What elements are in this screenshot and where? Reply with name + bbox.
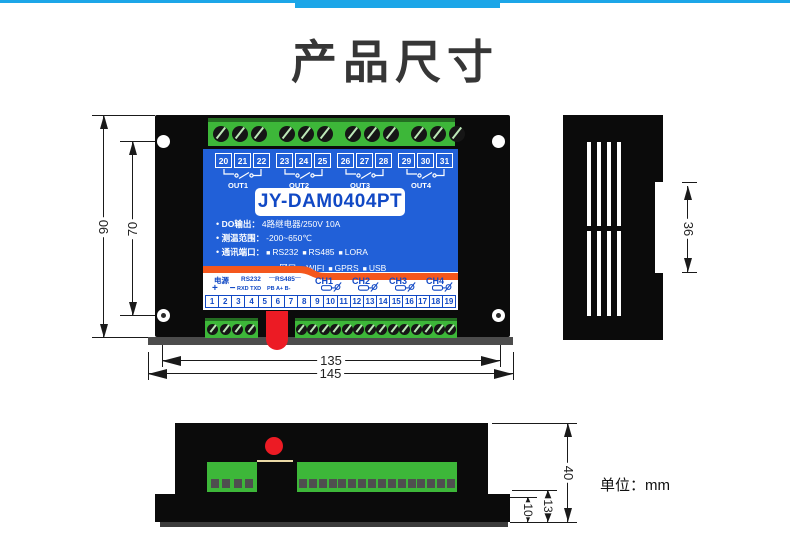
spec-label: DO输出： [222,219,260,229]
screw-icon [376,324,387,335]
terminal-slot [408,479,416,488]
relay-terminal-numbers: 20 21 22 23 24 25 26 27 28 29 30 31 [215,153,453,168]
arrow-down-icon [564,508,572,522]
terminal-number: 22 [253,153,270,168]
vent-slot [617,231,621,316]
terminal-slot [329,479,337,488]
terminal-slot [222,479,230,488]
dim-height-inner: 70 [132,141,133,316]
terminal-number-group: 20 21 22 [215,153,270,168]
ext-line [513,352,514,380]
arrow-left-icon [162,356,181,366]
screw-icon [353,324,364,335]
spec-value: -200~650℃ [266,233,312,243]
bottom-view-terminal-left [207,462,257,492]
page-title: 产品尺寸 [0,26,790,92]
terminal-number: 2 [218,295,232,308]
terminal-group [411,123,465,142]
screw-icon [430,126,446,142]
unit-note: 单位：mm [600,474,670,495]
screw-icon [365,324,376,335]
arrow-down-icon [129,302,137,316]
bottom-view-terminal-right [297,462,457,492]
terminal-number: 26 [337,153,354,168]
usb-connector [266,311,288,350]
dim-label: 10 [521,502,535,517]
terminal-slot [388,479,396,488]
sensor-probe-icon [358,281,380,293]
ext-line [510,522,577,523]
terminal-slot [299,479,307,488]
side-mounting-tab [655,182,682,273]
terminal-slot [309,479,317,488]
terminal-number: 18 [429,295,443,308]
out-label: OUT4 [400,181,442,190]
bottom-view-shadow [160,522,508,527]
arrow-up-icon [129,141,137,155]
terminal-number: 28 [375,153,392,168]
dim-bottom-flange: 10 [527,497,528,522]
dim-label: 13 [541,498,555,513]
product-dimensions-page: 产品尺寸 90 70 20 21 22 [0,0,790,559]
rs485-label: RS485 [269,275,301,283]
terminal-number: 17 [416,295,430,308]
terminal-number: 14 [376,295,390,308]
terminal-slot [358,479,366,488]
screw-icon [422,324,433,335]
screw-icon [232,126,248,142]
terminal-number: 5 [258,295,272,308]
terminal-group [279,123,333,142]
spec-value: 4路继电器/250V 10A [262,219,340,229]
dim-label: 70 [125,218,141,238]
dim-label: 36 [680,219,696,239]
screw-icon [411,324,422,335]
side-view-enclosure [563,115,663,340]
faceplate: 20 21 22 23 24 25 26 27 28 29 30 31 [203,149,458,310]
screw-icon [364,126,380,142]
terminal-slot [427,479,435,488]
terminal-number: 9 [310,295,324,308]
sensor-probe-icon [432,281,454,293]
terminal-number: 29 [398,153,415,168]
dim-label: 90 [96,216,112,236]
screw-icon [307,324,318,335]
top-terminal-block [208,118,455,146]
arrow-up-icon [684,186,692,200]
dim-height-outer: 90 [103,115,104,338]
terminal-slot [234,479,242,488]
arrow-right-icon [494,369,513,379]
screw-icon [245,324,256,335]
terminal-slot [348,479,356,488]
screw-icon [383,126,399,142]
terminal-number: 8 [297,295,311,308]
terminal-number: 13 [363,295,377,308]
terminal-number: 30 [417,153,434,168]
screw-icon [330,324,341,335]
screw-icon [296,324,307,335]
screw-icon [213,126,229,142]
screw-icon [298,126,314,142]
dim-label: 40 [560,462,576,482]
spec-line: DO输出：4路继电器/250V 10A [216,217,390,231]
terminal-number-group: 23 24 25 [276,153,331,168]
connector-slot [257,460,293,462]
terminal-slot [398,479,406,488]
terminal-number-group: 29 30 31 [398,153,453,168]
spec-line: 通讯端口：RS232RS485LORA [216,245,390,261]
mounting-hole [492,135,505,148]
screw-icon [220,324,231,335]
comm-option: RS485 [302,247,334,257]
rs232-label: RS232 [241,276,261,283]
screw-icon [342,324,353,335]
screw-icon [411,126,427,142]
screw-icon [207,324,218,335]
terminal-slot [368,479,376,488]
screw-icon [449,126,465,142]
vent-slot [607,231,611,316]
screw-icon [445,324,456,335]
terminal-number: 11 [337,295,351,308]
rs232-pins: RXD TXD [237,286,261,292]
terminal-number: 21 [234,153,251,168]
screw-icon [388,324,399,335]
terminal-number: 23 [276,153,293,168]
terminal-number: 7 [284,295,298,308]
model-nameplate: JY-DAM0404PT [255,188,405,216]
arrow-down-icon [684,258,692,272]
screw-icon [319,324,330,335]
sensor-probe-icon [321,281,343,293]
terminal-number: 10 [323,295,337,308]
front-base-flange [148,337,513,345]
screw-icon [434,324,445,335]
out-label: OUT1 [217,181,259,190]
vent-slot [607,142,611,226]
terminal-number: 25 [314,153,331,168]
terminal-number: 27 [356,153,373,168]
terminal-number: 16 [402,295,416,308]
terminal-slot [338,479,346,488]
mounting-hole [157,309,170,322]
terminal-slot [211,479,219,488]
screw-icon [251,126,267,142]
dim-side-tab: 36 [687,186,688,272]
vent-slot [597,142,601,226]
dim-bottom-height: 40 [567,423,568,522]
spec-label: 通讯端口： [222,247,265,257]
ext-line [500,345,501,367]
screw-icon [317,126,333,142]
terminal-slot [319,479,327,488]
terminal-number-group: 26 27 28 [337,153,392,168]
terminal-number: 31 [436,153,453,168]
arrow-up-icon [100,115,108,129]
led-indicator [265,437,283,455]
dim-width-outer: 145 [148,373,513,374]
dim-bottom-step: 13 [547,490,548,522]
terminal-slot [437,479,445,488]
mounting-hole [492,309,505,322]
vent-slot [617,142,621,226]
comm-option: RS232 [266,247,298,257]
dim-label: 145 [317,366,345,382]
terminal-number: 15 [389,295,403,308]
dim-width-inner: 135 [162,360,500,361]
comm-option: LORA [339,247,368,257]
terminal-slot [245,479,253,488]
bottom-terminal-block-right [295,318,457,338]
terminal-number: 1 [205,295,219,308]
spec-label: 测温范围： [222,233,265,243]
top-accent-bar [295,0,500,8]
mounting-hole [157,135,170,148]
terminal-number: 3 [231,295,245,308]
terminal-slot [417,479,425,488]
arrow-up-icon [564,423,572,437]
arrow-right-icon [481,356,500,366]
vent-slot [587,142,591,226]
terminal-slot [378,479,386,488]
arrow-left-icon [148,369,167,379]
screw-icon [279,126,295,142]
terminal-number: 4 [244,295,258,308]
io-terminal-numbers: 1 2 3 4 5 6 7 8 9 10 11 12 13 14 15 16 1… [205,295,456,308]
vent-slot [587,231,591,316]
terminal-slot [447,479,455,488]
vent-slot [597,231,601,316]
screw-icon [399,324,410,335]
terminal-number: 12 [350,295,364,308]
terminal-number: 6 [271,295,285,308]
terminal-number: 24 [295,153,312,168]
arrow-down-icon [100,324,108,338]
sensor-probe-icon [395,281,417,293]
screw-icon [232,324,243,335]
screw-icon [345,126,361,142]
power-pins: + − [212,283,235,294]
terminal-group [213,123,267,142]
bottom-terminal-block-left [205,318,258,338]
bottom-view-flange [155,494,510,522]
spec-line: 测温范围：-200~650℃ [216,231,390,245]
terminal-number: 20 [215,153,232,168]
rs485-pins: PB A+ B- [267,286,290,292]
terminal-group [345,123,399,142]
terminal-number: 19 [442,295,456,308]
